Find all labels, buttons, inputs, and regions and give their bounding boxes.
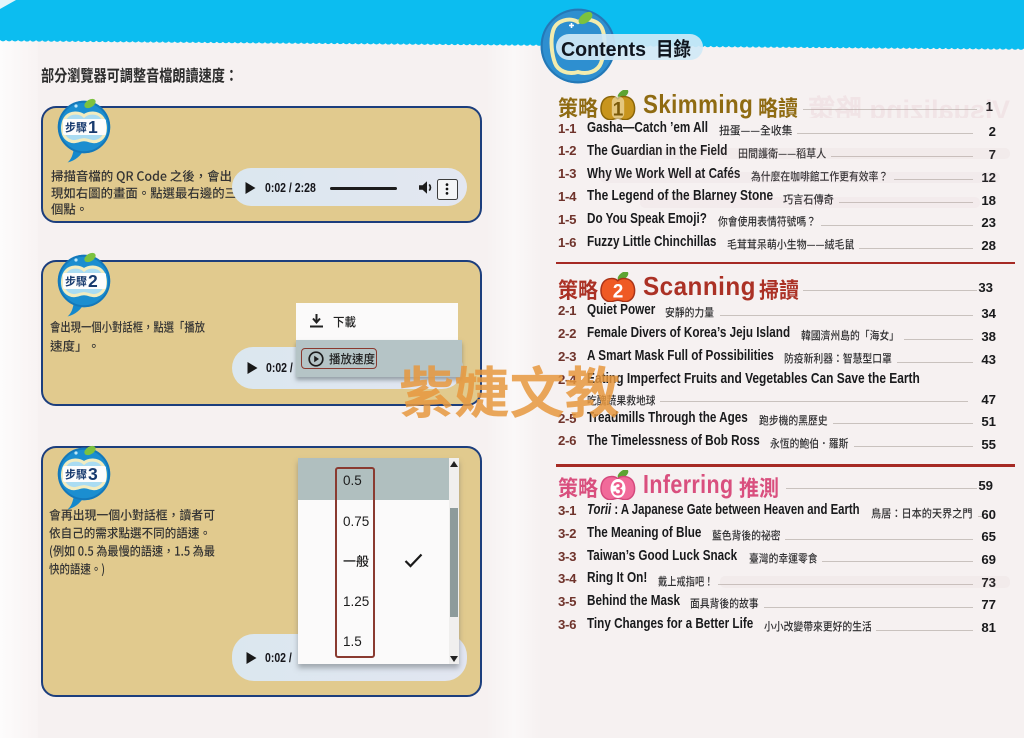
svg-text:1: 1 bbox=[613, 100, 624, 121]
svg-text:3: 3 bbox=[613, 479, 624, 500]
svg-text:2: 2 bbox=[613, 281, 624, 302]
